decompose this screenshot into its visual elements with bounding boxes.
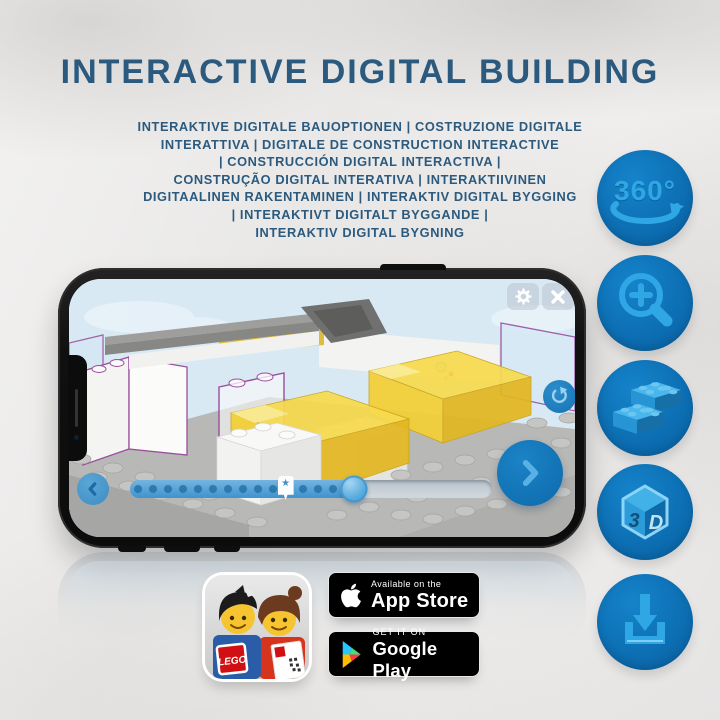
phone-speaker <box>75 389 78 427</box>
lego-3d-scene[interactable] <box>69 279 575 537</box>
lego-app-icon: LEGO <box>205 575 309 679</box>
progress-fill <box>130 480 354 498</box>
multilanguage-subtitle: INTERAKTIVE DIGITALE BAUOPTIONEN | COSTR… <box>100 118 620 241</box>
app-store-tagline: Available on the <box>371 579 468 590</box>
marketing-page: INTERACTIVE DIGITAL BUILDING INTERAKTIVE… <box>0 0 720 720</box>
cube-d-label: D <box>649 512 663 534</box>
3d-cube-icon: 3 D <box>597 464 693 560</box>
feature-zoom-badge <box>597 255 693 351</box>
google-play-icon <box>340 641 363 668</box>
rotation-arrow-icon <box>606 201 684 227</box>
close-button[interactable] <box>542 283 574 310</box>
chevron-left-icon <box>84 480 102 498</box>
smartphone: ★ <box>58 268 586 548</box>
google-play-badge[interactable]: GET IT ON Google Play <box>328 631 480 677</box>
google-play-name: Google Play <box>372 638 479 682</box>
lego-bricks-icon <box>597 360 693 456</box>
feature-bricks-badge <box>597 360 693 456</box>
previous-step-button[interactable] <box>77 473 109 505</box>
phone-camera <box>74 435 79 440</box>
build-progress-slider[interactable]: ★ <box>130 480 492 498</box>
feature-360-rotation-badge: 360° <box>597 150 693 246</box>
chevron-right-icon <box>513 456 547 490</box>
app-store-name: App Store <box>371 590 468 612</box>
phone-side-button <box>380 264 446 270</box>
apple-logo-icon <box>340 582 362 609</box>
phone-reflection <box>58 552 586 656</box>
cube-3-label: 3 <box>628 510 639 532</box>
feature-download-badge <box>597 574 693 670</box>
download-icon <box>597 574 693 670</box>
feature-3d-badge: 3 D <box>597 464 693 560</box>
rotate-view-button[interactable] <box>543 380 575 413</box>
app-store-badge[interactable]: Available on the App Store <box>328 572 480 618</box>
rotate-arrow-icon <box>549 386 570 407</box>
phone-screen: ★ <box>69 279 575 537</box>
close-icon <box>551 290 565 304</box>
next-step-button[interactable] <box>497 440 563 506</box>
settings-button[interactable] <box>507 283 539 310</box>
page-title: INTERACTIVE DIGITAL BUILDING <box>0 52 720 92</box>
google-play-tagline: GET IT ON <box>372 627 479 638</box>
zoom-in-icon <box>597 255 693 351</box>
qr-card <box>271 641 306 679</box>
slider-thumb[interactable] <box>341 476 368 503</box>
gear-icon <box>515 288 532 305</box>
